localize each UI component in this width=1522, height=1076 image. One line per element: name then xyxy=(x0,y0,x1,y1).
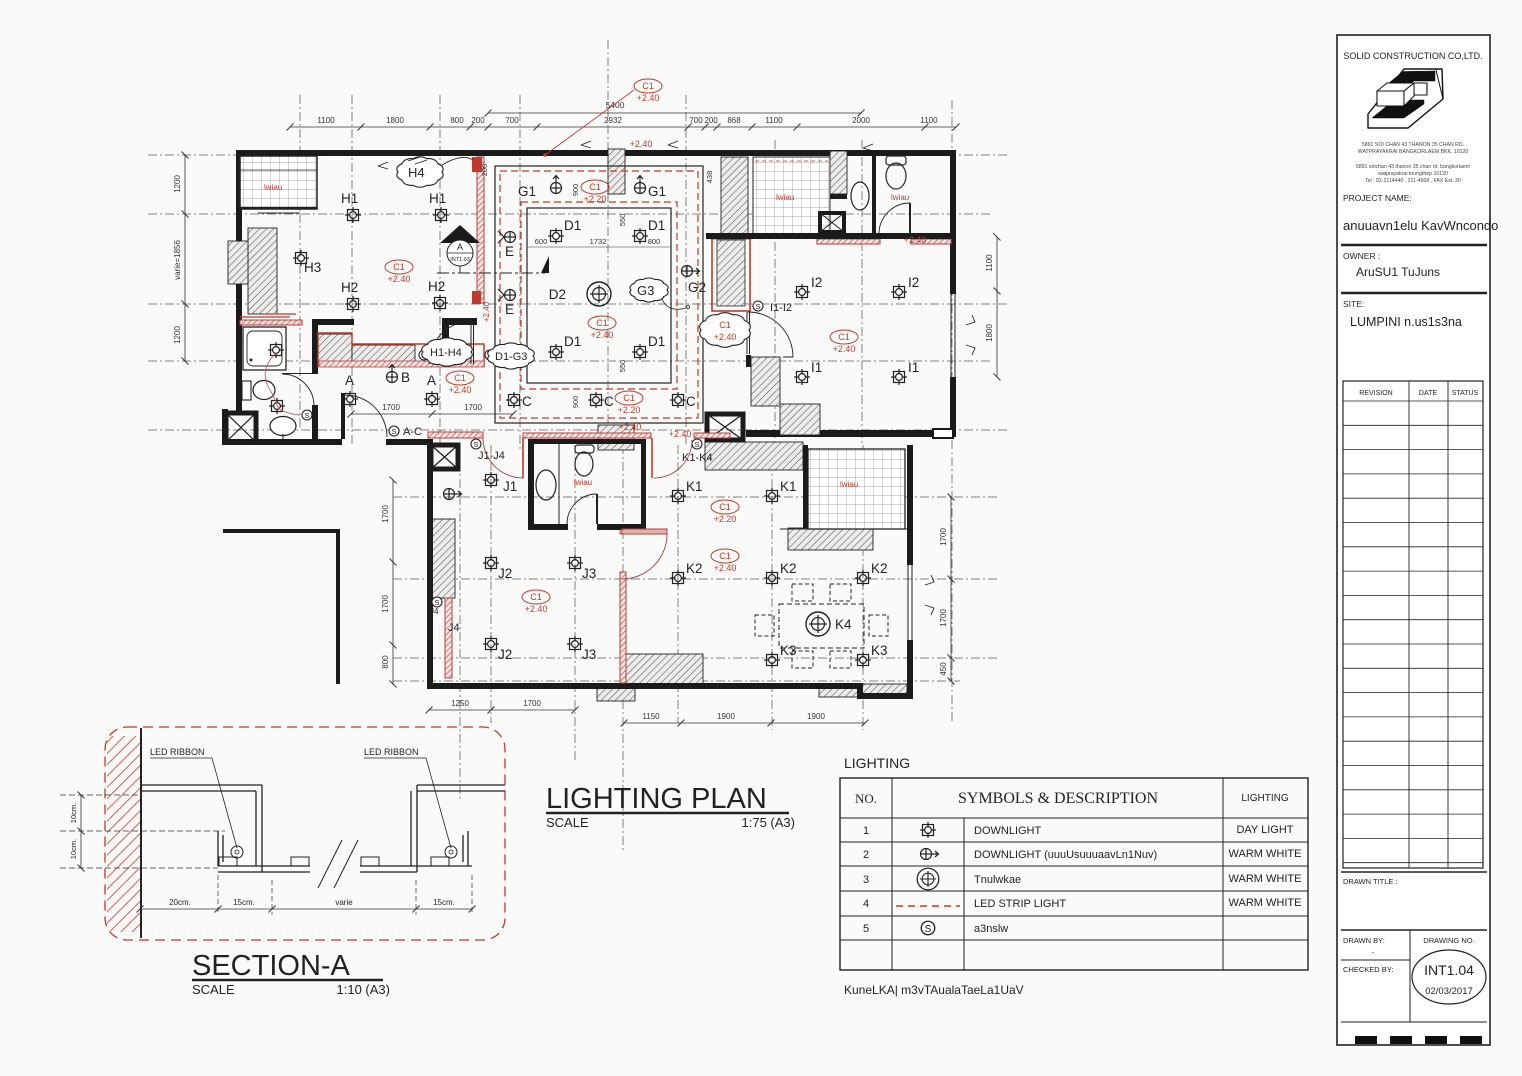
svg-text:LUMPINI n.us1s3na: LUMPINI n.us1s3na xyxy=(1350,315,1462,329)
svg-text:K2: K2 xyxy=(871,561,888,576)
svg-text:1:75 (A3): 1:75 (A3) xyxy=(742,815,795,830)
svg-text:1200: 1200 xyxy=(173,326,182,344)
svg-text:E: E xyxy=(505,244,514,259)
svg-text:H1: H1 xyxy=(429,191,446,206)
svg-text:G3: G3 xyxy=(637,283,654,298)
svg-text:+2.40: +2.40 xyxy=(591,330,614,340)
svg-text:200: 200 xyxy=(480,164,489,177)
svg-text:J3: J3 xyxy=(582,566,596,581)
svg-text:SOLID CONSTRUCTION CO,LTD.: SOLID CONSTRUCTION CO,LTD. xyxy=(1343,51,1482,61)
svg-text:SECTION-A: SECTION-A xyxy=(192,950,351,982)
svg-text:H3: H3 xyxy=(304,260,321,275)
svg-text:DRAWING NO.: DRAWING NO. xyxy=(1423,936,1474,945)
svg-text:800: 800 xyxy=(381,655,390,669)
svg-text:10cm.: 10cm. xyxy=(69,803,78,823)
svg-text:C1: C1 xyxy=(719,320,731,330)
svg-text:lwiau: lwiau xyxy=(891,193,909,202)
svg-text:INT1.03: INT1.03 xyxy=(450,257,470,263)
svg-text:200: 200 xyxy=(471,116,485,125)
svg-text:1800: 1800 xyxy=(985,324,994,342)
svg-text:SCALE: SCALE xyxy=(192,982,235,997)
svg-text:H2: H2 xyxy=(428,279,445,294)
svg-text:INT1.04: INT1.04 xyxy=(1424,962,1474,978)
svg-text:868: 868 xyxy=(727,116,741,125)
svg-text:K1-K4: K1-K4 xyxy=(682,452,713,464)
svg-text:1200: 1200 xyxy=(173,175,182,193)
svg-text:D1: D1 xyxy=(648,218,665,233)
svg-text:J3: J3 xyxy=(582,647,596,662)
svg-text:+2.40: +2.40 xyxy=(637,93,660,103)
svg-text:K1: K1 xyxy=(780,479,797,494)
svg-text:lwiau: lwiau xyxy=(776,193,794,202)
svg-text:I1: I1 xyxy=(811,360,822,375)
svg-text:+2.40: +2.40 xyxy=(833,344,856,354)
svg-text:20cm.: 20cm. xyxy=(169,898,191,907)
svg-text:+2.40: +2.40 xyxy=(619,422,642,432)
svg-text:D1: D1 xyxy=(564,334,581,349)
svg-text:G2: G2 xyxy=(688,280,706,295)
svg-text:WARM WHITE: WARM WHITE xyxy=(1229,873,1302,885)
svg-text:CHECKED BY:: CHECKED BY: xyxy=(1343,965,1393,974)
svg-text:5891 soichan 43 thanon 35 chan: 5891 soichan 43 thanon 35 chan rd. bangk… xyxy=(1356,164,1470,170)
svg-text:+2.20: +2.20 xyxy=(618,405,641,415)
svg-text:K2: K2 xyxy=(780,561,797,576)
svg-text:1900: 1900 xyxy=(717,712,735,721)
svg-text:NO.: NO. xyxy=(855,791,877,806)
svg-text:1150: 1150 xyxy=(642,712,660,721)
svg-text:J1: J1 xyxy=(503,479,517,494)
svg-text:C: C xyxy=(686,394,696,409)
svg-text:SITE:: SITE: xyxy=(1343,299,1364,309)
svg-text:LED STRIP LIGHT: LED STRIP LIGHT xyxy=(974,898,1066,910)
svg-text:STATUS: STATUS xyxy=(1452,390,1479,397)
svg-text:lwiau: lwiau xyxy=(574,478,592,487)
svg-text:I2: I2 xyxy=(908,275,919,290)
svg-text:watprayakrai krungthep 10120: watprayakrai krungthep 10120 xyxy=(1378,171,1448,177)
svg-text:LED RIBBON: LED RIBBON xyxy=(150,747,205,757)
svg-text:D1: D1 xyxy=(648,334,665,349)
svg-text:J1-J4: J1-J4 xyxy=(478,450,505,462)
svg-text:900: 900 xyxy=(571,184,580,197)
svg-text:C1: C1 xyxy=(623,393,635,403)
svg-text:1100: 1100 xyxy=(317,116,335,125)
svg-text:varie=1856: varie=1856 xyxy=(173,240,182,280)
svg-text:K3: K3 xyxy=(871,643,888,658)
svg-text:J4: J4 xyxy=(430,607,439,616)
svg-text:-: - xyxy=(1372,948,1375,957)
svg-text:I1-I2: I1-I2 xyxy=(770,302,792,314)
svg-text:5: 5 xyxy=(863,923,869,935)
svg-text:D1-G3: D1-G3 xyxy=(495,351,527,363)
svg-text:H1: H1 xyxy=(341,191,358,206)
svg-text:1700: 1700 xyxy=(382,403,400,412)
svg-text:C: C xyxy=(522,394,532,409)
svg-text:600: 600 xyxy=(535,237,548,246)
svg-text:1100: 1100 xyxy=(920,116,938,125)
svg-text:SCALE: SCALE xyxy=(546,815,589,830)
svg-text:LIGHTING: LIGHTING xyxy=(844,755,910,771)
svg-text:DRAWN TITLE :: DRAWN TITLE : xyxy=(1343,877,1398,886)
svg-text:SYMBOLS & DESCRIPTION: SYMBOLS & DESCRIPTION xyxy=(958,790,1158,807)
svg-text:G1: G1 xyxy=(518,184,536,199)
svg-text:2000: 2000 xyxy=(852,116,870,125)
svg-text:+2.40: +2.40 xyxy=(714,563,737,573)
svg-text:1800: 1800 xyxy=(386,116,404,125)
svg-text:OWNER :: OWNER : xyxy=(1343,251,1380,261)
svg-text:D2: D2 xyxy=(549,287,566,302)
svg-text:C1: C1 xyxy=(530,592,542,602)
svg-text:K2: K2 xyxy=(686,561,703,576)
svg-text:G1: G1 xyxy=(648,184,666,199)
svg-text:A: A xyxy=(345,373,354,388)
svg-text:10cm.: 10cm. xyxy=(69,839,78,859)
svg-text:WATPRAYAKRAI BANGKORLAEM BKK.: WATPRAYAKRAI BANGKORLAEM BKK. 10120 xyxy=(1358,149,1469,155)
svg-text:DATE: DATE xyxy=(1419,390,1437,397)
svg-text:1100: 1100 xyxy=(765,116,783,125)
svg-text:1700: 1700 xyxy=(523,699,541,708)
svg-text:anuuavn1elu KavWncondo: anuuavn1elu KavWncondo xyxy=(1343,218,1498,233)
svg-text:A: A xyxy=(457,242,463,252)
svg-text:+2.40: +2.40 xyxy=(904,235,927,245)
svg-text:1700: 1700 xyxy=(381,505,390,523)
svg-text:WARM WHITE: WARM WHITE xyxy=(1229,897,1302,909)
svg-text:C1: C1 xyxy=(393,262,405,272)
svg-text:1900: 1900 xyxy=(807,712,825,721)
svg-text:J2: J2 xyxy=(498,647,512,662)
svg-text:15cm.: 15cm. xyxy=(433,898,455,907)
svg-text:4: 4 xyxy=(863,898,869,910)
svg-text:1700: 1700 xyxy=(939,528,948,546)
svg-text:K4: K4 xyxy=(835,617,852,632)
svg-text:D1: D1 xyxy=(564,218,581,233)
svg-text:KuneLKA| m3vTAualaTaeLa1UaV: KuneLKA| m3vTAualaTaeLa1UaV xyxy=(844,983,1024,997)
svg-text:lwiau: lwiau xyxy=(840,480,858,489)
svg-text:Tel : 02-2114440 , 211-4568 ,: Tel : 02-2114440 , 211-4568 , FAX Ext. 2… xyxy=(1365,178,1461,184)
svg-text:C1: C1 xyxy=(454,373,466,383)
svg-text:3: 3 xyxy=(863,874,869,886)
svg-text:I1: I1 xyxy=(908,360,919,375)
svg-text:550: 550 xyxy=(618,360,627,373)
svg-text:I2: I2 xyxy=(811,275,822,290)
svg-text:+2.20: +2.20 xyxy=(584,194,607,204)
svg-text:C1: C1 xyxy=(838,332,850,342)
svg-text:+2.40: +2.40 xyxy=(714,332,737,342)
svg-text:+2.40: +2.40 xyxy=(388,274,411,284)
svg-text:H1-H4: H1-H4 xyxy=(430,347,462,359)
svg-text:800: 800 xyxy=(450,116,464,125)
svg-text:+2.40: +2.40 xyxy=(630,139,653,149)
svg-text:varie: varie xyxy=(335,898,353,907)
svg-text:5891 SOI CHAN 43 THANON 35 CHA: 5891 SOI CHAN 43 THANON 35 CHAN RD. xyxy=(1362,142,1464,148)
svg-text:C1: C1 xyxy=(596,318,608,328)
svg-text:DOWNLIGHT (uuuUsuuuaavLn1Nuv): DOWNLIGHT (uuuUsuuuaavLn1Nuv) xyxy=(974,849,1157,861)
svg-text:+2.20: +2.20 xyxy=(714,514,737,524)
svg-text:+2.40: +2.40 xyxy=(449,385,472,395)
svg-text:C: C xyxy=(604,394,614,409)
svg-text:Tnulwkae: Tnulwkae xyxy=(974,874,1021,886)
svg-text:C1: C1 xyxy=(719,502,731,512)
svg-text:S: S xyxy=(925,924,932,935)
svg-text:H2: H2 xyxy=(341,280,358,295)
svg-text:J4: J4 xyxy=(448,622,460,634)
svg-text:A-C: A-C xyxy=(403,426,422,438)
svg-text:LIGHTING: LIGHTING xyxy=(1241,793,1288,804)
svg-text:E: E xyxy=(505,302,514,317)
svg-text:1732: 1732 xyxy=(590,237,607,246)
svg-text:2932: 2932 xyxy=(604,116,622,125)
svg-text:1700: 1700 xyxy=(939,609,948,627)
svg-text:DRAWN BY:: DRAWN BY: xyxy=(1343,936,1385,945)
svg-text:K1: K1 xyxy=(686,479,703,494)
svg-text:450: 450 xyxy=(939,662,948,676)
svg-text:550: 550 xyxy=(618,214,627,227)
svg-text:lwiau: lwiau xyxy=(264,183,282,192)
svg-text:H4: H4 xyxy=(408,165,425,180)
svg-text:C1: C1 xyxy=(589,182,601,192)
svg-text:1100: 1100 xyxy=(985,254,994,272)
svg-text:+2.40: +2.40 xyxy=(669,429,692,439)
svg-text:1:10 (A3): 1:10 (A3) xyxy=(337,982,390,997)
svg-text:2: 2 xyxy=(863,849,869,861)
svg-text:C1: C1 xyxy=(719,551,731,561)
svg-text:PROJECT NAME:: PROJECT NAME: xyxy=(1343,193,1412,203)
svg-text:700: 700 xyxy=(505,116,519,125)
svg-text:+2.40: +2.40 xyxy=(482,301,491,322)
svg-text:200: 200 xyxy=(704,116,718,125)
svg-text:900: 900 xyxy=(571,396,580,409)
svg-text:1250: 1250 xyxy=(451,699,469,708)
svg-text:DAY LIGHT: DAY LIGHT xyxy=(1236,824,1293,836)
svg-text:LIGHTING PLAN: LIGHTING PLAN xyxy=(546,783,767,815)
svg-text:DOWNLIGHT: DOWNLIGHT xyxy=(974,825,1042,837)
svg-text:a3nslw: a3nslw xyxy=(974,923,1008,935)
svg-text:J2: J2 xyxy=(498,566,512,581)
svg-text:WARM WHITE: WARM WHITE xyxy=(1229,848,1302,860)
svg-text:15cm.: 15cm. xyxy=(233,898,255,907)
svg-text:C1: C1 xyxy=(642,81,654,91)
svg-text:REVISION: REVISION xyxy=(1359,390,1392,397)
svg-text:02/03/2017: 02/03/2017 xyxy=(1425,986,1473,997)
svg-text:1700: 1700 xyxy=(381,595,390,613)
svg-text:1700: 1700 xyxy=(464,403,482,412)
svg-text:800: 800 xyxy=(648,237,661,246)
svg-text:700: 700 xyxy=(689,116,703,125)
svg-text:+2.40: +2.40 xyxy=(525,604,548,614)
svg-text:438: 438 xyxy=(705,171,714,184)
svg-text:LED RIBBON: LED RIBBON xyxy=(364,747,419,757)
svg-text:B: B xyxy=(401,370,410,385)
svg-text:1: 1 xyxy=(863,825,869,837)
svg-text:AruSU1 TuJuns: AruSU1 TuJuns xyxy=(1356,265,1440,279)
svg-text:A: A xyxy=(427,373,436,388)
